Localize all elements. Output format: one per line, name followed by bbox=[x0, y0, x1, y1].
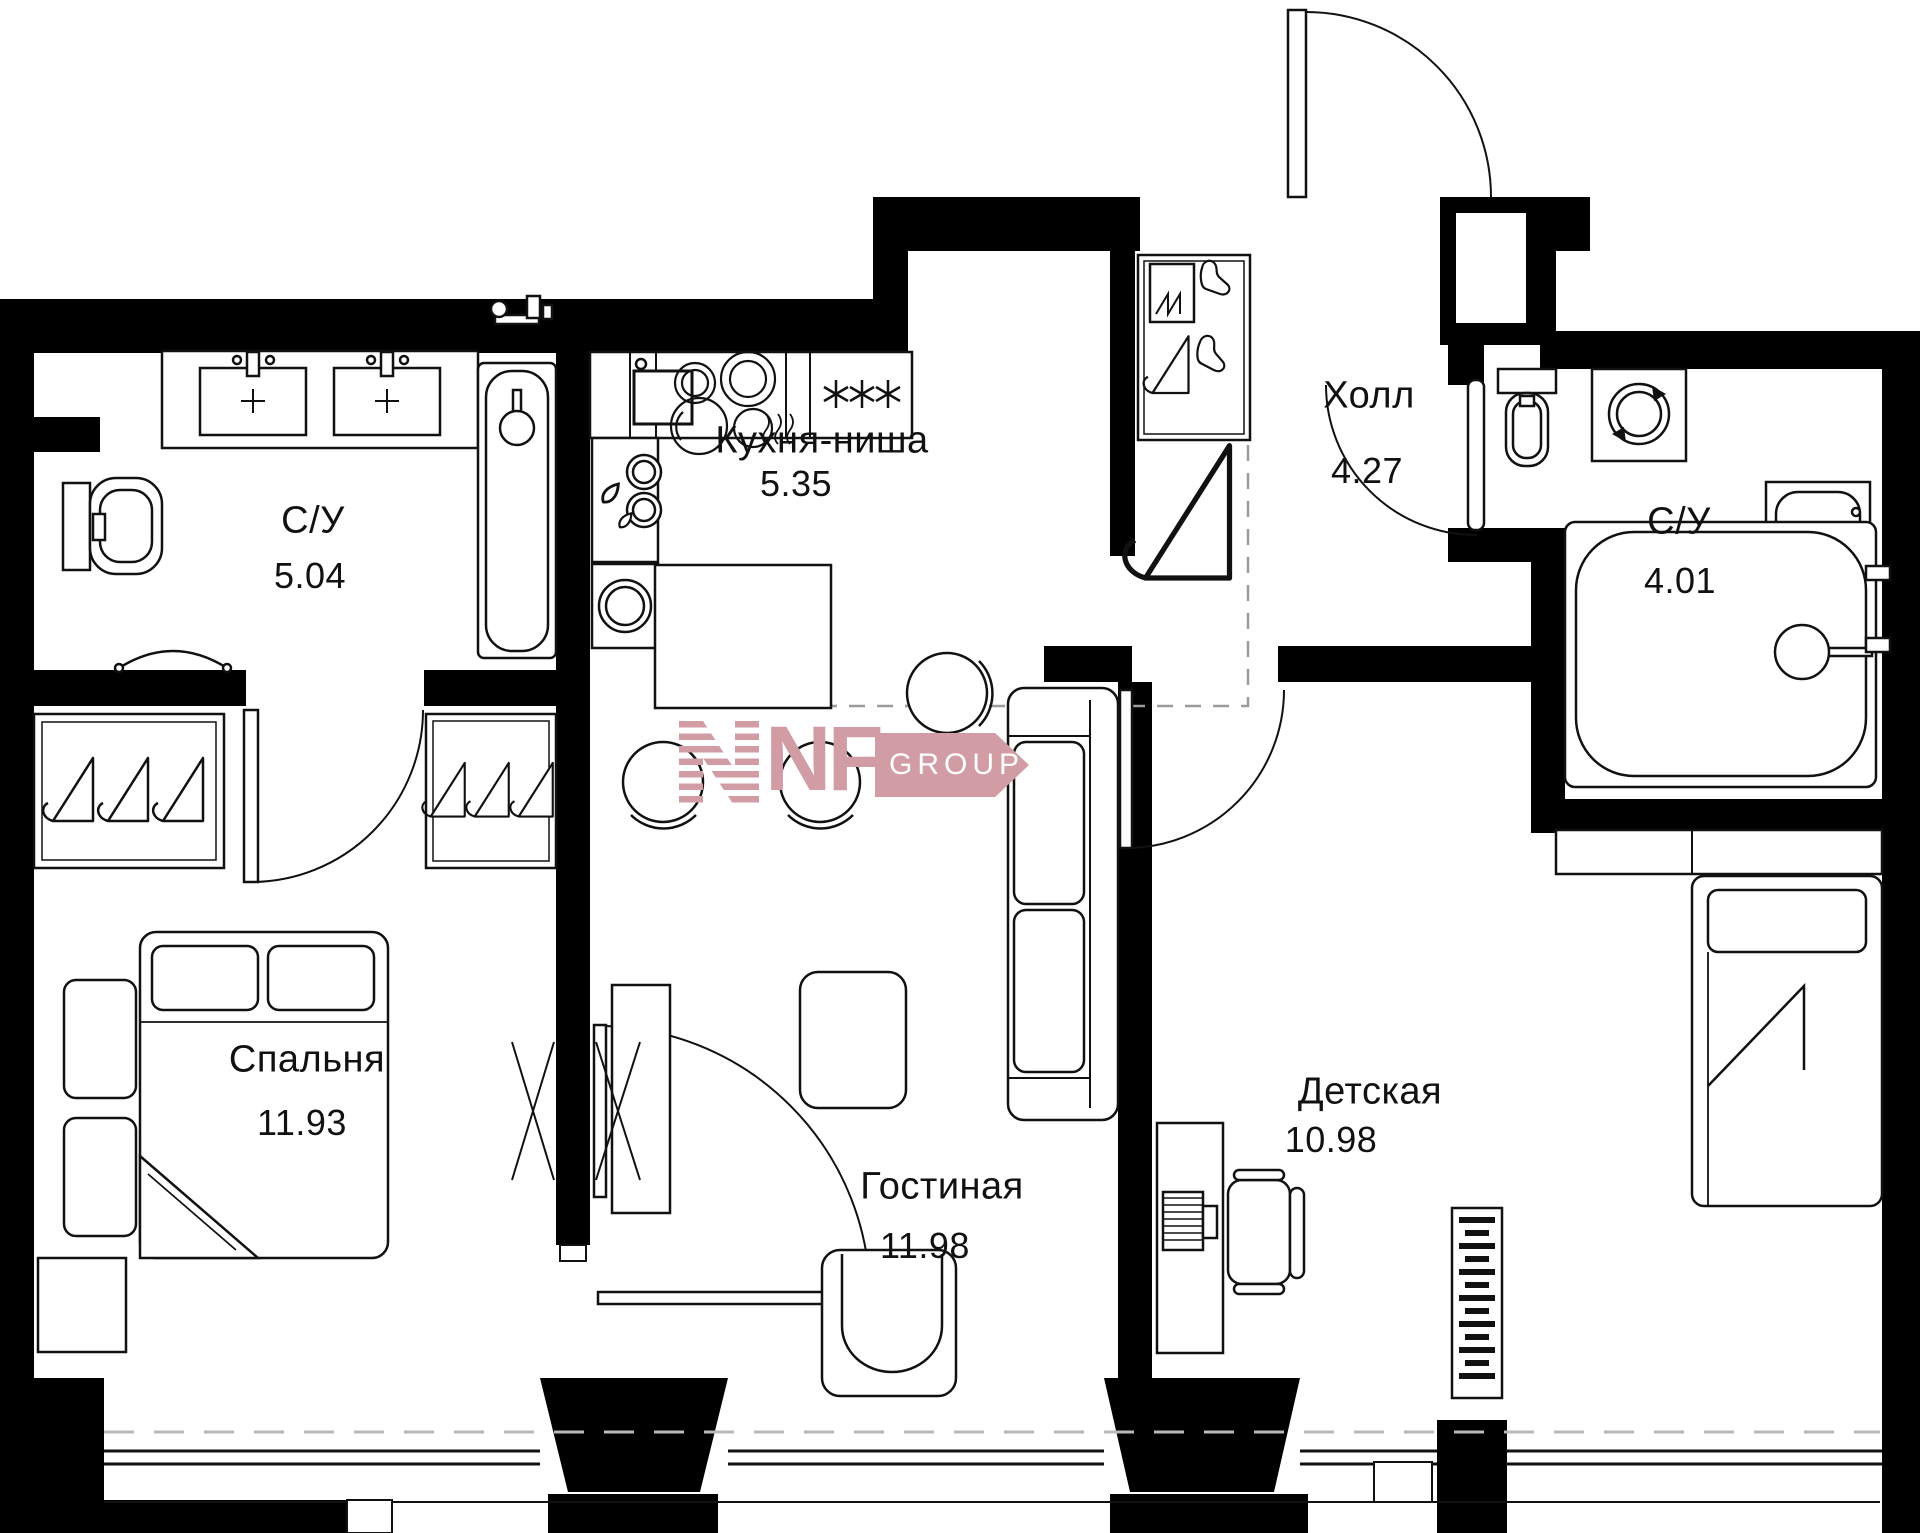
towel-rail bbox=[115, 651, 231, 672]
nf-logo-striped-n-icon bbox=[679, 721, 759, 807]
room-area-bedroom: 11.93 bbox=[257, 1102, 347, 1144]
double-bed bbox=[140, 932, 388, 1258]
windows bbox=[104, 1451, 1882, 1502]
window-sill bbox=[1374, 1462, 1432, 1502]
toilet bbox=[1498, 369, 1556, 466]
bathroom1-door bbox=[244, 710, 423, 882]
room-area-kids: 10.98 bbox=[1285, 1119, 1378, 1161]
room-area-bathroom1: 5.04 bbox=[274, 555, 346, 597]
tv-mark-bedroom bbox=[512, 1042, 554, 1180]
room-area-hall: 4.27 bbox=[1331, 450, 1403, 492]
room-label-kids: Детская bbox=[1298, 1071, 1442, 1114]
room-label-bedroom: Спальня bbox=[229, 1039, 385, 1082]
shaft-niche bbox=[1456, 213, 1526, 323]
armchair bbox=[822, 1250, 956, 1396]
nightstand bbox=[64, 980, 136, 1098]
bathtub bbox=[1565, 522, 1890, 787]
room-area-bathroom2: 4.01 bbox=[1644, 560, 1716, 602]
nightstand bbox=[64, 1118, 136, 1236]
tv-unit bbox=[594, 985, 670, 1213]
desk-chair bbox=[1228, 1170, 1304, 1294]
entrance-door bbox=[1288, 10, 1491, 197]
wardrobe bbox=[1556, 830, 1882, 874]
coat-hanger-icon bbox=[1125, 446, 1230, 578]
single-bed bbox=[1692, 876, 1882, 1206]
double-vanity bbox=[162, 351, 478, 448]
washing-machine bbox=[1592, 369, 1686, 461]
room-label-hall: Холл bbox=[1323, 375, 1415, 418]
room-area-kitchen: 5.35 bbox=[760, 463, 832, 505]
nf-logo-group-arrow: GROUP bbox=[875, 733, 1029, 797]
room-label-living: Гостиная bbox=[860, 1166, 1024, 1209]
entry-shoe-closet bbox=[1138, 255, 1250, 440]
room-label-bathroom1: С/У bbox=[281, 500, 345, 543]
nf-logo-letters: NF bbox=[765, 707, 880, 812]
window-sill bbox=[347, 1500, 392, 1533]
dining-table bbox=[655, 565, 831, 708]
nf-group-watermark: NF GROUP bbox=[679, 719, 1029, 811]
toilet bbox=[63, 478, 162, 574]
coffee-table bbox=[800, 972, 906, 1108]
radiator-shelf bbox=[1452, 1208, 1502, 1398]
kitchen-washer bbox=[592, 564, 658, 648]
dresser bbox=[38, 1258, 126, 1352]
wall-end-cap bbox=[560, 1245, 586, 1261]
room-label-bathroom2: С/У bbox=[1647, 501, 1711, 544]
room-area-living: 11.98 bbox=[880, 1225, 970, 1267]
floor-plan: NF GROUP С/У 5.04 Кухня-ниша 5.35 Холл 4… bbox=[0, 0, 1920, 1533]
room-label-kitchen: Кухня-ниша bbox=[715, 420, 928, 463]
fridge-icon bbox=[824, 380, 900, 408]
desk bbox=[1157, 1123, 1223, 1353]
